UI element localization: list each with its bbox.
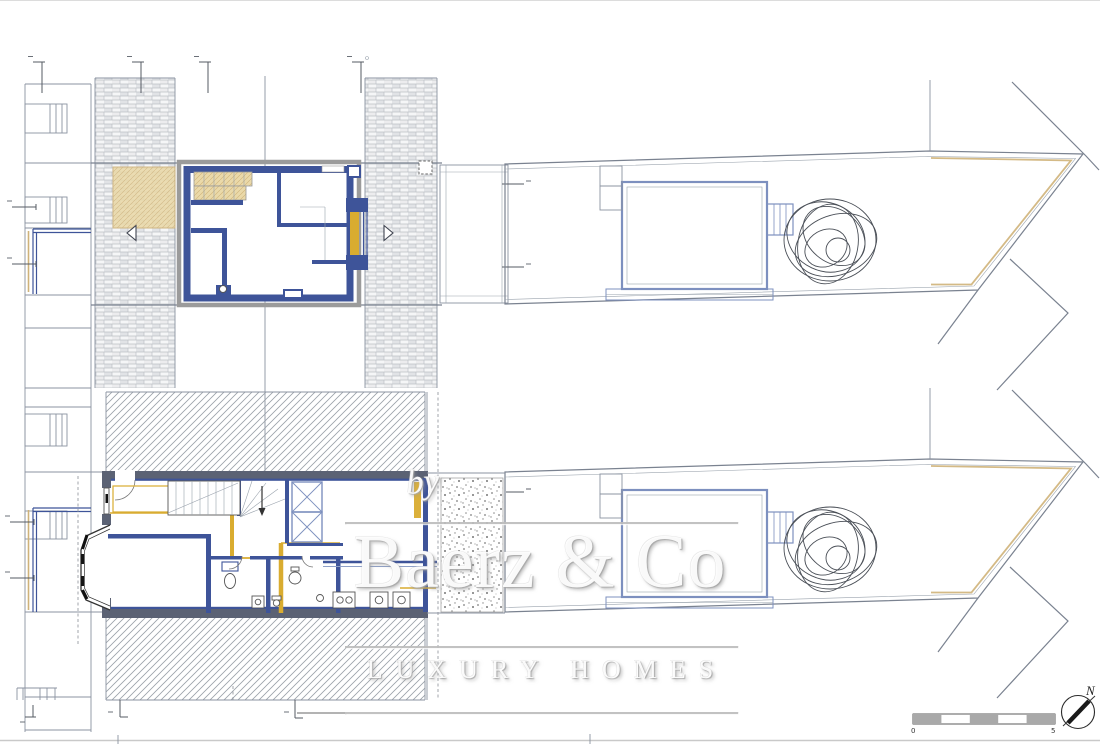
- gravel-patio: [427, 473, 505, 613]
- wardrobe: [292, 482, 322, 542]
- interior-wall: [222, 228, 227, 295]
- ground-floor-plan: [5, 388, 531, 732]
- north-arrow-compass: N: [1062, 683, 1097, 729]
- brick-roof-band-right: [365, 78, 437, 388]
- stair-direction-arrow: [259, 508, 266, 516]
- upper-room: [179, 162, 368, 305]
- entry-door-opening: [115, 470, 135, 481]
- stairs-ground: [168, 481, 285, 517]
- scale-bar: 0 5: [911, 714, 1055, 735]
- site-plan-upper: [505, 80, 1099, 390]
- threshold: [284, 290, 302, 298]
- toilet-tank: [222, 562, 238, 571]
- interior-wall: [312, 260, 350, 264]
- site-plan-ground: [505, 388, 1099, 698]
- roof-terrace-right-upper: [440, 165, 531, 303]
- roof-hatch: [419, 161, 432, 174]
- basin: [317, 595, 324, 602]
- toilet: [225, 574, 236, 589]
- chimney-block: [25, 197, 67, 223]
- chimney-block: [25, 511, 67, 539]
- chimney-block: [25, 414, 67, 446]
- stairs-upper: [191, 172, 252, 205]
- sink: [289, 572, 301, 584]
- interior-wall: [277, 223, 347, 227]
- chimney-block: [25, 104, 67, 133]
- door-swing: [115, 480, 135, 500]
- floorplan-sheet: 0 5 N by Baerz & Co LUXURY HOMES: [0, 0, 1100, 744]
- roof-terrace-tan-area: [113, 167, 175, 228]
- north-label: N: [1085, 683, 1096, 698]
- scale-end-label: 5: [1051, 727, 1055, 735]
- bathroom-fixtures: [222, 556, 324, 602]
- floorplan-drawing: 0 5 N: [0, 0, 1100, 744]
- scale-start-label: 0: [911, 727, 915, 735]
- window-notch: [322, 166, 344, 172]
- bay-window: [81, 525, 110, 610]
- neighbor-building-outline-upper: [25, 84, 91, 388]
- kitchen-sink: [375, 596, 383, 604]
- neighbor-hatch-band-top: [106, 392, 425, 472]
- interior-wall: [191, 228, 227, 233]
- toilet: [220, 286, 227, 293]
- interior-wall: [277, 172, 281, 227]
- neighbor-hatch-band-bottom: [106, 618, 425, 700]
